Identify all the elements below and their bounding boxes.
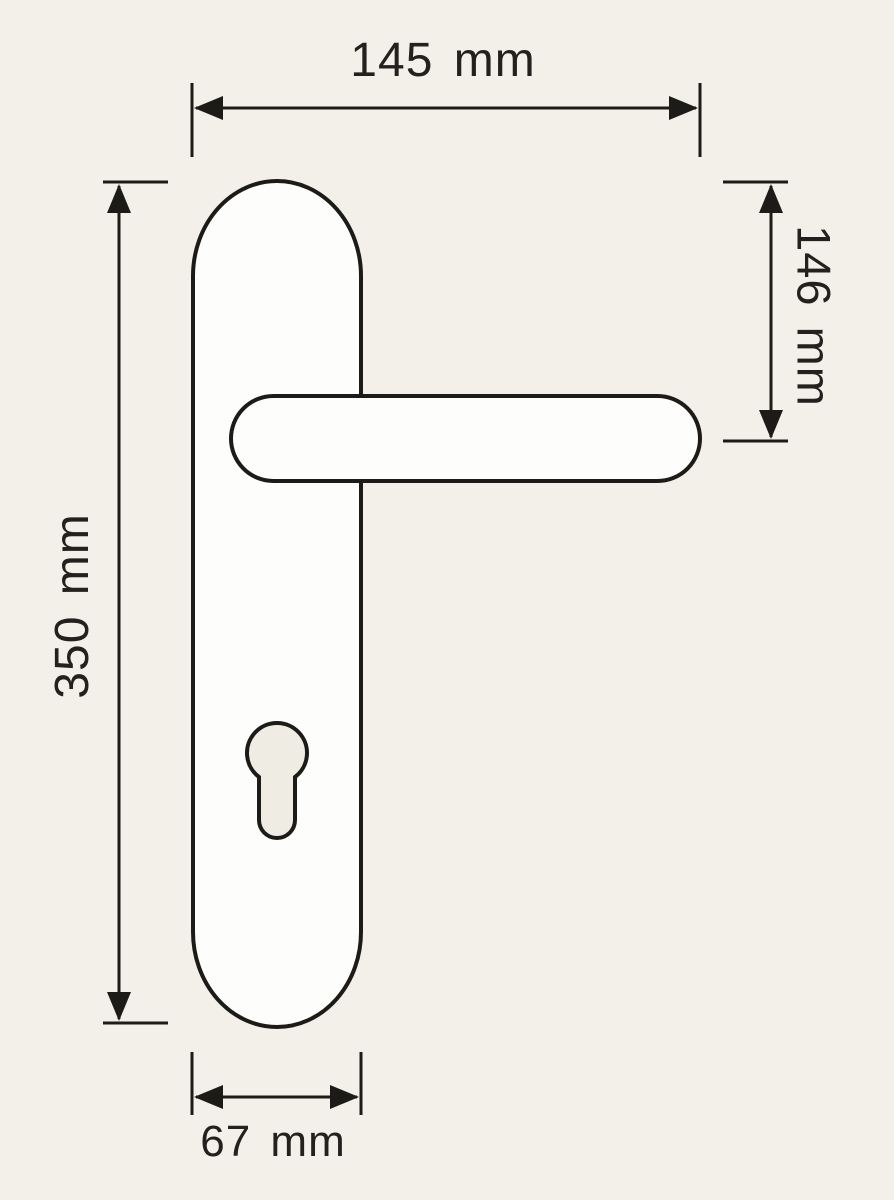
- dim-bottom-arrowhead-right: [330, 1085, 359, 1109]
- dimension-label-bottom: 67 mm: [200, 1120, 345, 1164]
- lever-handle-outline: [231, 396, 700, 481]
- dim-bottom-arrowhead-left: [194, 1085, 223, 1109]
- dim-top-arrowhead-right: [669, 96, 698, 120]
- dim-left-arrowhead-down: [107, 992, 131, 1021]
- dimension-left: [103, 182, 168, 1023]
- dim-right-arrowhead-up: [759, 184, 783, 213]
- technical-drawing-canvas: 145 mm 350 mm 146 mm 67 mm: [0, 0, 894, 1200]
- dimension-label-left: 350 mm: [49, 513, 97, 698]
- dim-top-arrowhead-left: [194, 96, 223, 120]
- dim-left-arrowhead-up: [107, 184, 131, 213]
- dimension-top: [192, 83, 700, 157]
- dimension-bottom: [192, 1052, 361, 1115]
- dimension-right: [723, 182, 788, 441]
- dim-right-arrowhead-down: [759, 410, 783, 439]
- dimension-label-top: 145 mm: [350, 37, 535, 85]
- dimension-label-right: 146 mm: [791, 225, 838, 407]
- drawing-svg: [0, 0, 894, 1200]
- backplate-outline: [193, 181, 361, 1027]
